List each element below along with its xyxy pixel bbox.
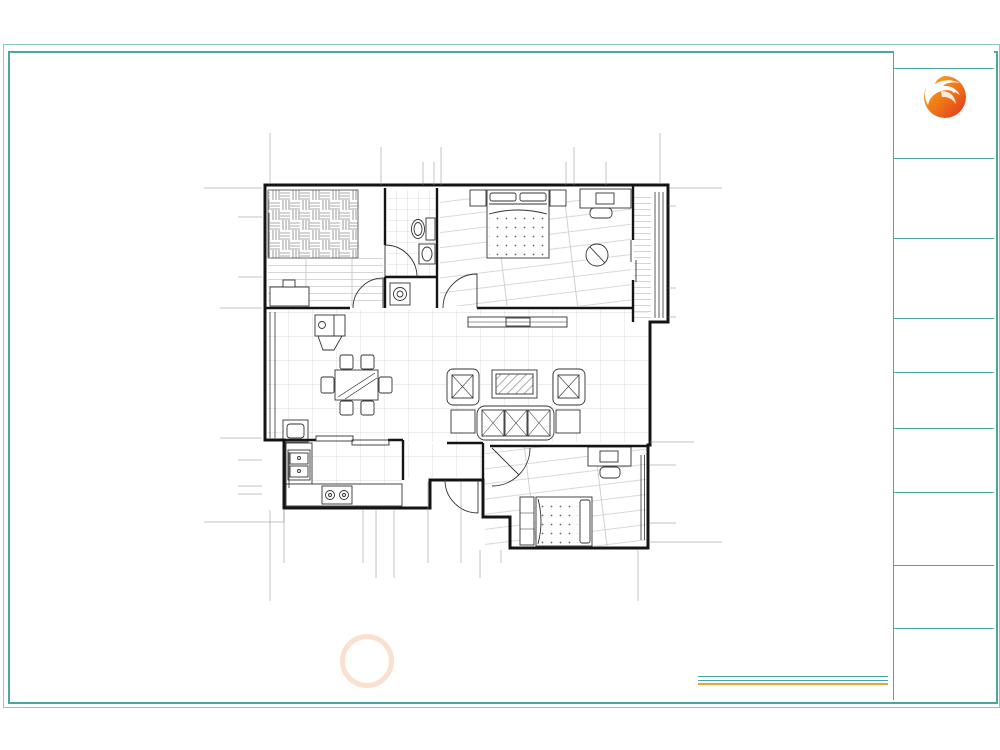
- floor-plan: [0, 0, 1000, 750]
- title-block: [893, 51, 994, 700]
- bed-quilt: [489, 214, 547, 256]
- hall-cabinet: [315, 315, 345, 336]
- sofa: [477, 406, 554, 440]
- stove: [322, 486, 352, 504]
- notes-cell: [894, 238, 994, 318]
- toilet-tank: [426, 218, 435, 240]
- master-desk: [580, 189, 631, 208]
- bed2-quilt: [538, 499, 578, 544]
- project-name-cell: [894, 158, 994, 238]
- bench-cushion: [283, 280, 295, 287]
- dining-chair: [361, 401, 374, 415]
- drawing-name-cell: [894, 318, 994, 372]
- drawing-sheet: [0, 0, 1000, 750]
- dining-chair: [340, 401, 353, 415]
- nightstand: [550, 190, 566, 206]
- bedroom2-chair: [600, 467, 620, 478]
- linfeng-logo-icon: [916, 71, 972, 121]
- dining-chair: [321, 377, 334, 393]
- drawing-number-cell: [894, 628, 994, 700]
- corridor-tile: [404, 444, 482, 478]
- print-date-cell: [894, 565, 994, 628]
- paper-size-cell: [894, 372, 994, 428]
- coffee-table-top: [496, 374, 533, 394]
- designer-cell: [894, 428, 994, 492]
- nightstand: [470, 190, 486, 206]
- washer: [390, 283, 410, 305]
- dining-chair: [379, 377, 392, 393]
- bedside-cabinet: [520, 497, 534, 545]
- side-table-right: [556, 410, 580, 433]
- tatami-platform: [268, 190, 358, 258]
- balcony-deck: [634, 192, 651, 320]
- side-table-left: [451, 410, 475, 433]
- dining-chair: [361, 355, 374, 369]
- review-cell: [894, 492, 994, 565]
- dining-chair: [340, 355, 353, 369]
- entry-door: [445, 480, 478, 513]
- pillow: [580, 500, 590, 543]
- balcony-window: [655, 192, 663, 318]
- bedroom2-desk: [588, 447, 631, 466]
- desk-chair: [590, 208, 612, 218]
- bench: [270, 287, 309, 306]
- logo-cell: [894, 68, 994, 158]
